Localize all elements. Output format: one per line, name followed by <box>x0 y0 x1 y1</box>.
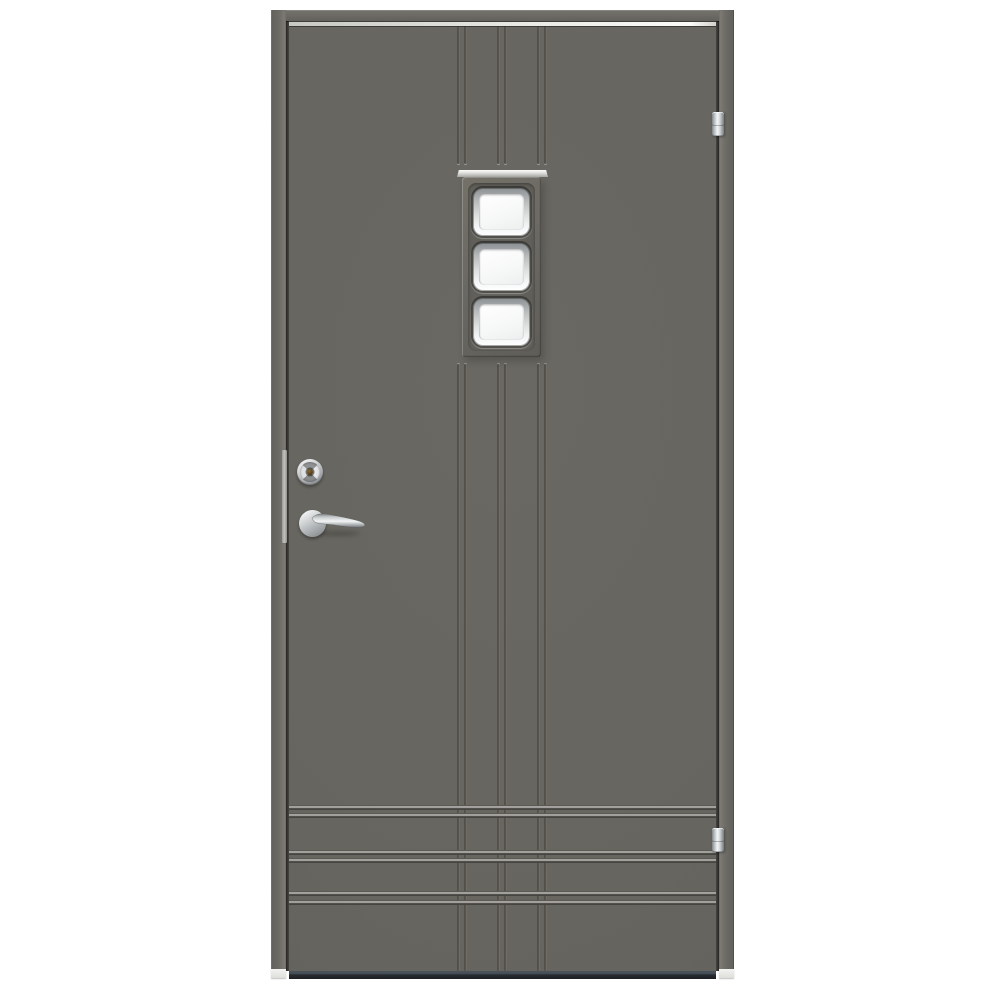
horizontal-groove <box>289 900 716 905</box>
door-frame-head <box>271 10 734 22</box>
vertical-groove <box>544 364 547 971</box>
vertical-groove <box>537 26 540 164</box>
vertical-groove <box>537 364 540 971</box>
vertical-groove <box>497 364 500 971</box>
window-pane <box>471 186 532 238</box>
pane-glass <box>479 249 524 285</box>
window-pane <box>471 296 532 348</box>
horizontal-groove <box>289 805 716 810</box>
horizontal-groove <box>289 850 716 855</box>
hinge-knuckle <box>712 828 724 842</box>
sill-cap-left <box>271 969 286 978</box>
horizontal-groove <box>289 858 716 863</box>
hinge-top <box>712 112 724 168</box>
horizontal-groove <box>289 891 716 896</box>
lock-cylinder <box>297 459 323 485</box>
pane-glass <box>479 304 524 340</box>
horizontal-groove <box>289 813 716 818</box>
pane-glass <box>479 194 524 230</box>
threshold-sill <box>289 971 716 979</box>
leaf-top-highlight <box>289 22 716 26</box>
hinge-knuckle <box>712 112 724 126</box>
lever-handle <box>305 509 371 535</box>
vertical-groove <box>464 364 467 971</box>
door-leaf <box>289 26 716 971</box>
window-pane <box>471 241 532 293</box>
keyhole <box>307 469 313 475</box>
vertical-groove <box>464 26 467 164</box>
sill-cap-right <box>719 969 734 978</box>
vertical-groove <box>504 364 507 971</box>
vertical-groove <box>544 26 547 164</box>
hinge-bottom <box>712 828 724 884</box>
door-product-photo <box>0 0 1000 1000</box>
window-recess <box>468 183 535 351</box>
window-surround <box>462 177 541 357</box>
vertical-groove <box>504 26 507 164</box>
lock-edge-faceplate <box>282 450 287 543</box>
lock-cylinder-face <box>300 462 320 482</box>
vertical-groove <box>457 364 460 971</box>
window-drip-cap <box>457 170 548 177</box>
vertical-groove <box>497 26 500 164</box>
vertical-groove <box>457 26 460 164</box>
